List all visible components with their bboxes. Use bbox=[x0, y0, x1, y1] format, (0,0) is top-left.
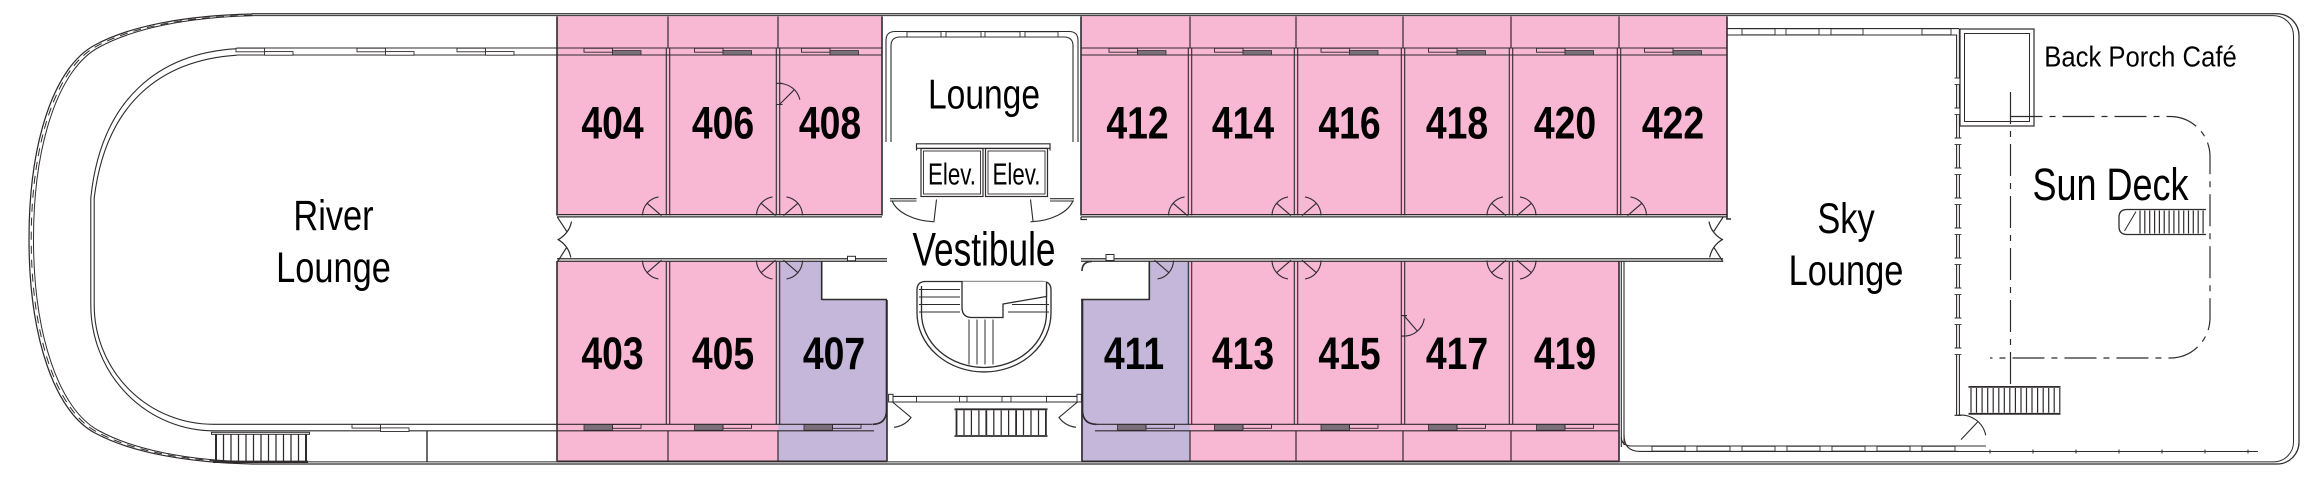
svg-text:Back Porch Café: Back Porch Café bbox=[2044, 40, 2237, 73]
svg-text:405: 405 bbox=[692, 329, 754, 379]
svg-text:Elev.: Elev. bbox=[928, 157, 976, 191]
svg-text:407: 407 bbox=[803, 329, 865, 379]
svg-text:415: 415 bbox=[1318, 329, 1380, 379]
svg-text:Lounge: Lounge bbox=[928, 72, 1040, 118]
svg-text:406: 406 bbox=[692, 98, 754, 148]
svg-text:413: 413 bbox=[1212, 329, 1274, 379]
svg-text:411: 411 bbox=[1104, 329, 1164, 379]
svg-text:403: 403 bbox=[581, 329, 643, 379]
svg-text:420: 420 bbox=[1534, 98, 1596, 148]
svg-text:419: 419 bbox=[1534, 329, 1596, 379]
svg-text:Sun Deck: Sun Deck bbox=[2032, 159, 2189, 210]
svg-text:416: 416 bbox=[1318, 98, 1380, 148]
svg-text:422: 422 bbox=[1642, 98, 1704, 148]
svg-text:418: 418 bbox=[1426, 98, 1488, 148]
svg-text:404: 404 bbox=[581, 98, 643, 148]
svg-text:Sky: Sky bbox=[1817, 195, 1875, 242]
svg-text:Vestibule: Vestibule bbox=[912, 223, 1055, 276]
svg-text:Lounge: Lounge bbox=[276, 244, 391, 291]
svg-text:414: 414 bbox=[1212, 98, 1274, 148]
svg-text:417: 417 bbox=[1426, 329, 1488, 379]
svg-text:408: 408 bbox=[799, 98, 861, 148]
svg-text:412: 412 bbox=[1106, 98, 1168, 148]
svg-text:Elev.: Elev. bbox=[993, 157, 1041, 191]
svg-text:Lounge: Lounge bbox=[1789, 247, 1904, 294]
svg-text:River: River bbox=[293, 192, 373, 239]
